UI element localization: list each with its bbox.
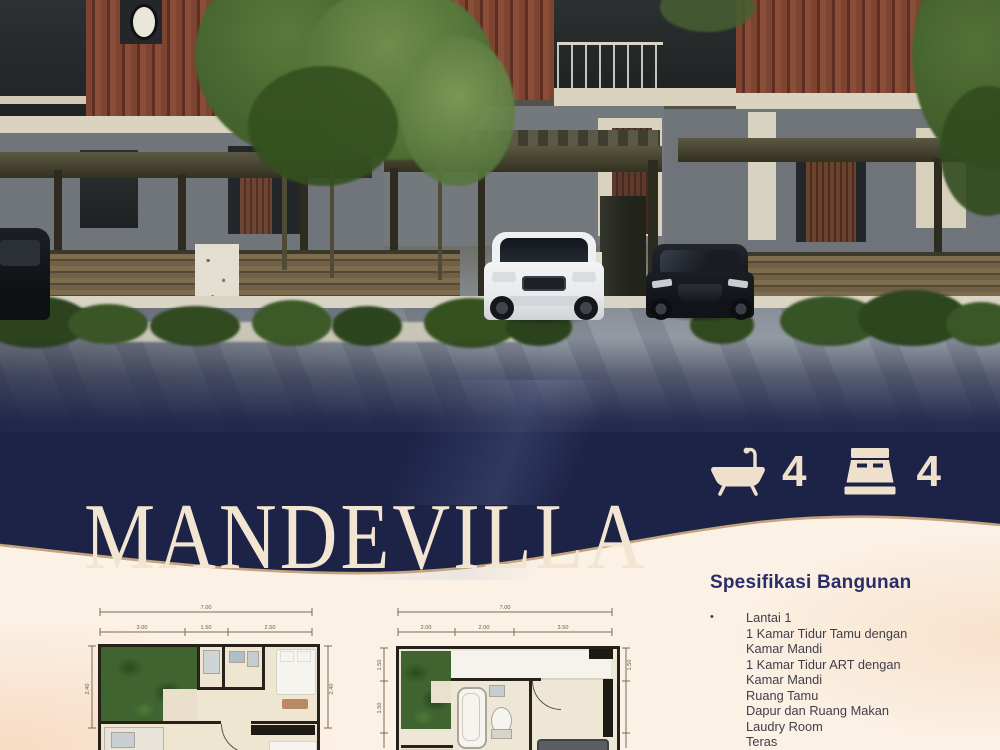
planter-notch — [163, 689, 197, 721]
specs-panel: Spesifikasi Bangunan •Lantai 1 •1 Kamar … — [702, 572, 992, 750]
door-arc — [532, 681, 561, 710]
interior-wall — [197, 687, 265, 690]
black-suv-wheel — [650, 298, 672, 320]
property-poster: MANDEVILLA 4 4 7.00 3.00 1.50 — [0, 0, 1000, 750]
wardrobe — [589, 649, 613, 659]
red-slat-panel — [736, 0, 932, 95]
bed-count: 4 — [916, 450, 940, 494]
porthole-window — [130, 4, 158, 40]
wardrobe — [251, 725, 315, 735]
dim-label: 2.00 — [421, 625, 432, 631]
dim-label: 1.50 — [627, 660, 633, 671]
bed-icon — [838, 446, 902, 498]
dark-car-left-window — [0, 240, 40, 266]
sink-fixture — [489, 685, 505, 697]
interior-wall — [222, 647, 225, 689]
bath-count: 4 — [782, 450, 806, 494]
white-suv-bumper — [508, 296, 580, 306]
dim-label: 7.00 — [201, 605, 212, 611]
dim-label: 2.40 — [85, 684, 91, 695]
bathtub-inner — [462, 693, 480, 741]
white-suv-headlight — [572, 272, 596, 282]
white-suv-headlight — [492, 272, 516, 282]
bed — [537, 739, 609, 750]
plan-outline — [98, 644, 320, 750]
building-left-edge — [0, 0, 88, 132]
spec-item: •Lantai 1 — [702, 610, 992, 626]
plan-outline — [396, 646, 620, 750]
spec-item: •Kamar Mandi — [702, 641, 992, 657]
bathtub-icon — [708, 446, 768, 498]
wardrobe — [603, 679, 613, 737]
pillow — [297, 651, 311, 662]
dim-label: 2.50 — [265, 625, 276, 631]
planter-notch — [431, 681, 451, 703]
tree-foliage — [400, 36, 515, 186]
spec-item: •Ruang Tamu — [702, 688, 992, 704]
unit-stats: 4 4 — [708, 446, 941, 498]
dim-label: 3.00 — [137, 625, 148, 631]
specs-heading: Spesifikasi Bangunan — [710, 572, 992, 594]
washer-fixture — [203, 650, 220, 674]
dim-label: 2.40 — [329, 684, 335, 695]
spec-item: •Kamar Mandi — [702, 672, 992, 688]
sink-fixture — [247, 651, 259, 667]
black-suv-grille — [678, 284, 722, 302]
dim-label: 1.50 — [201, 625, 212, 631]
building-trim — [0, 96, 88, 104]
dim-label: 1.50 — [377, 660, 383, 671]
spec-item: •Laudry Room — [702, 719, 992, 735]
white-suv-wheel — [574, 296, 598, 320]
sink-fixture — [229, 651, 245, 663]
spec-item: •Dapur dan Ruang Makan — [702, 703, 992, 719]
interior-wall — [197, 647, 200, 689]
project-title: MANDEVILLA — [84, 490, 647, 584]
interior-wall — [529, 678, 532, 750]
door-arc — [221, 724, 251, 750]
bullet: • — [702, 610, 746, 626]
pillow — [280, 651, 294, 662]
dim-label: 1.50 — [377, 703, 383, 714]
dim-label: 3.50 — [558, 625, 569, 631]
tree-foliage — [248, 66, 398, 186]
black-suv-wheel — [730, 298, 752, 320]
floor-plan-lantai-2: 7.00 2.00 2.00 3.50 1.50 1.50 1.50 — [370, 598, 650, 750]
floor-plan-lantai-1: 7.00 3.00 1.50 2.50 2.40 2.40 — [85, 598, 335, 750]
void-balcony — [451, 651, 611, 680]
spec-item: •1 Kamar Tidur Tamu dengan — [702, 626, 992, 642]
dim-label: 2.00 — [479, 625, 490, 631]
interior-wall — [262, 647, 265, 689]
wood-door — [806, 156, 856, 242]
spec-item: •1 Kamar Tidur ART dengan — [702, 657, 992, 673]
spec-item: •Teras — [702, 734, 992, 750]
bench — [282, 699, 308, 709]
interior-wall — [251, 721, 317, 724]
white-suv-grille — [522, 276, 566, 291]
toilet-tank — [491, 729, 512, 739]
bed — [269, 741, 317, 750]
interior-wall — [401, 745, 453, 748]
wall-column — [748, 112, 776, 240]
interior-wall — [101, 721, 221, 724]
fascia-band — [554, 88, 736, 106]
kitchen-sink — [111, 732, 135, 748]
white-suv-wheel — [490, 296, 514, 320]
interior-wall — [451, 678, 541, 681]
dim-label: 7.00 — [500, 605, 511, 611]
